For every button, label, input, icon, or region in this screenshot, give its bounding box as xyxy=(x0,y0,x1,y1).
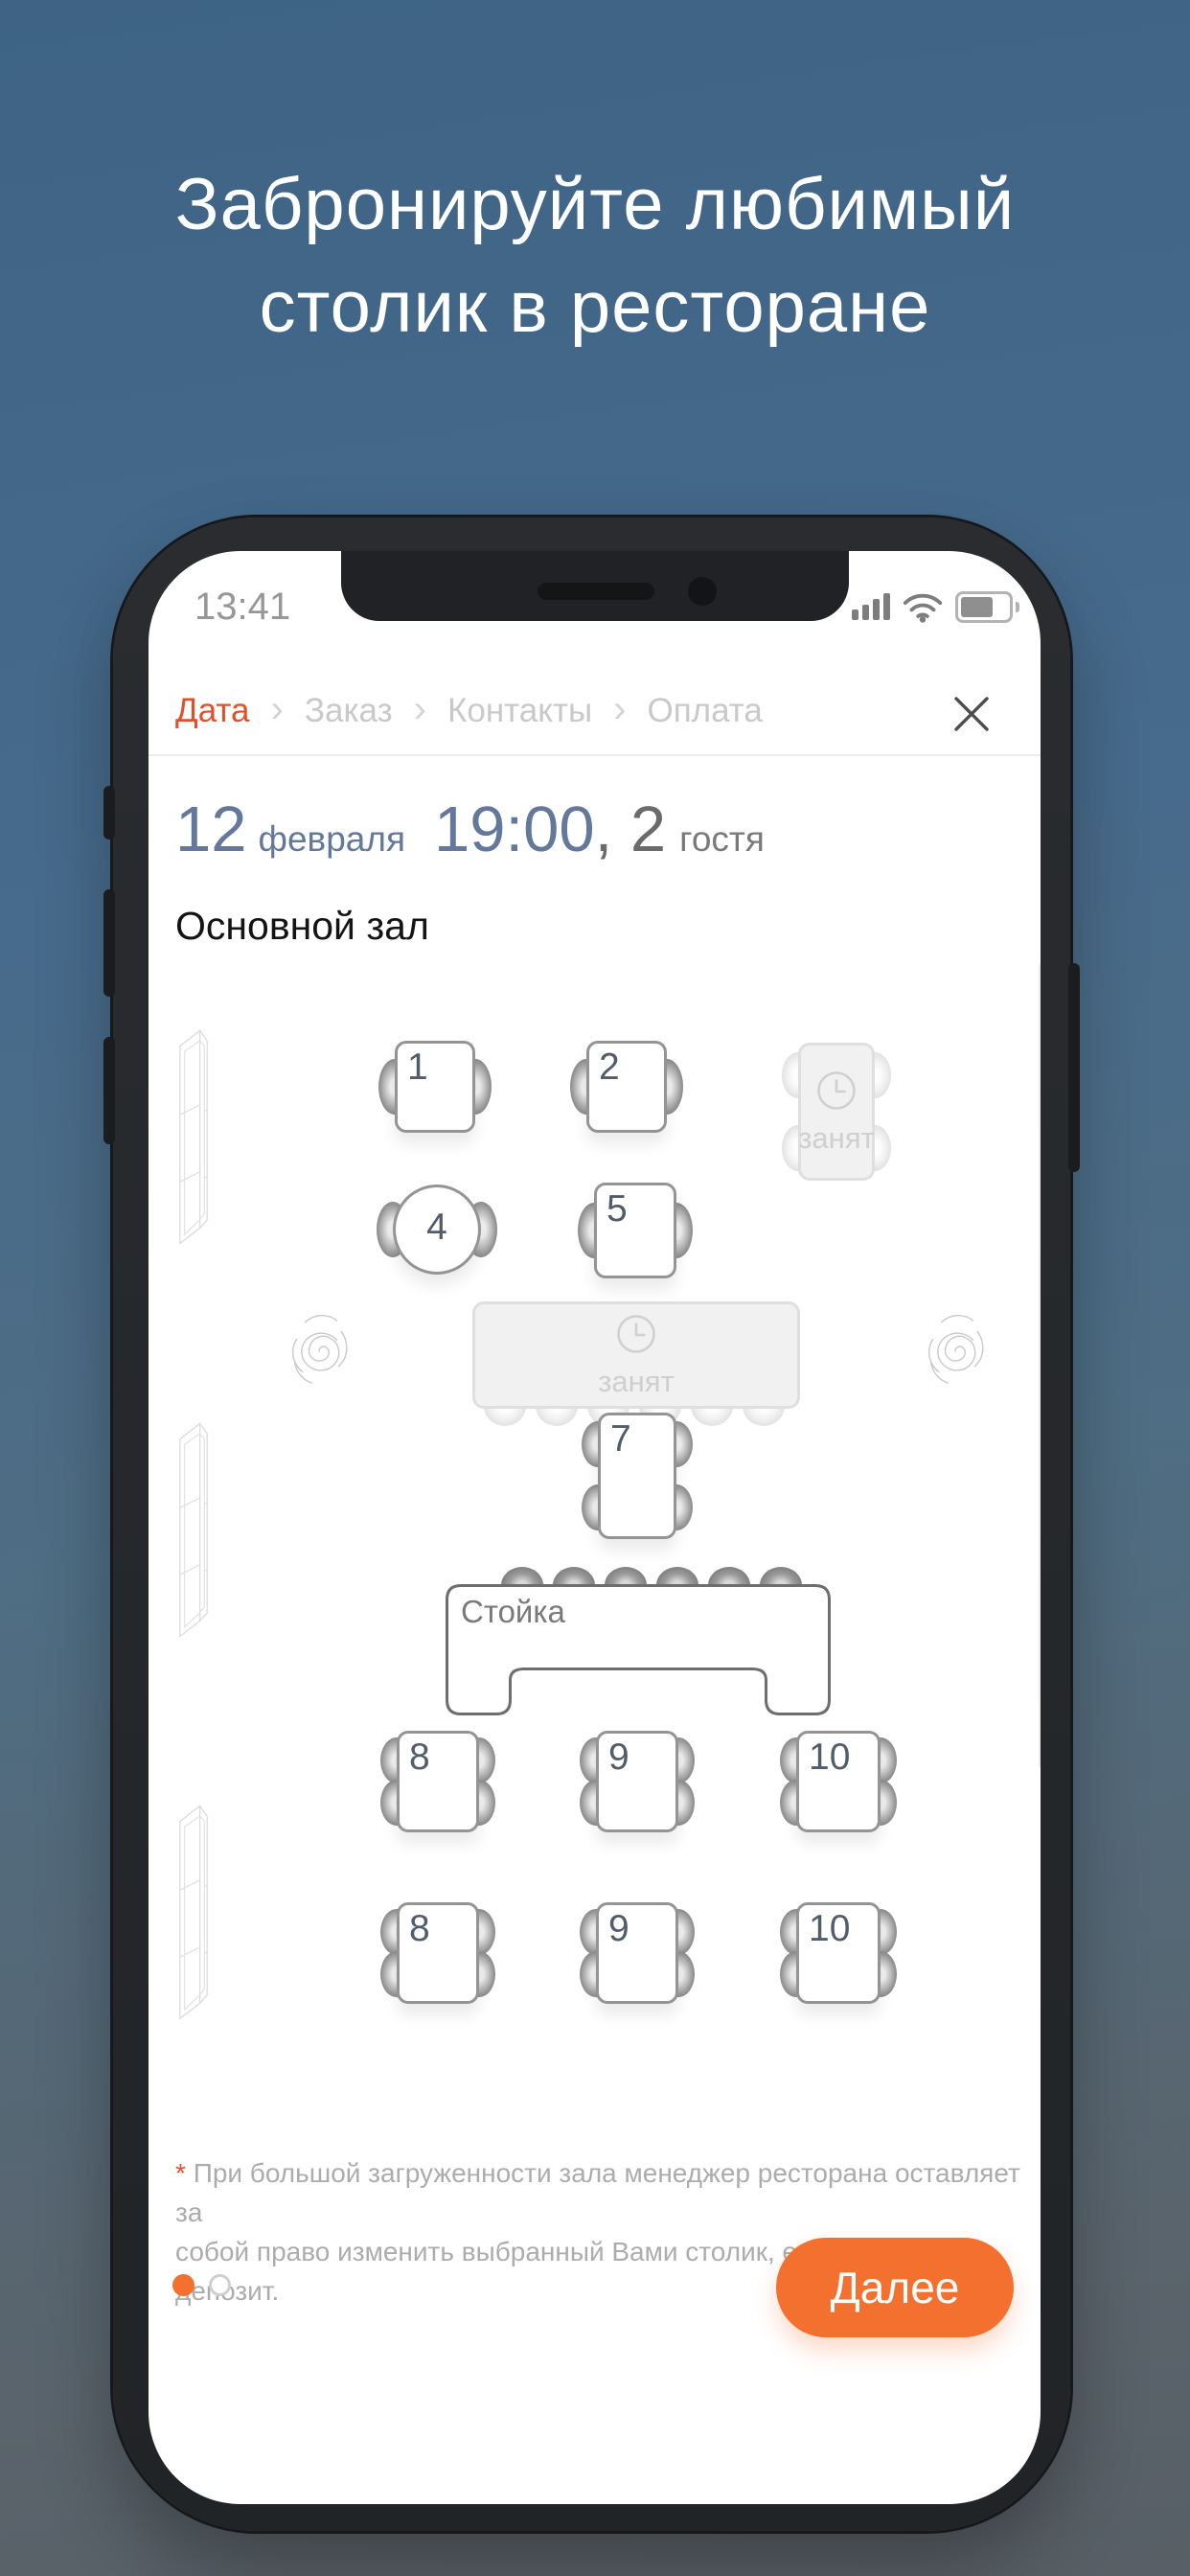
table-number: 9 xyxy=(608,1736,629,1779)
page-dot-1[interactable] xyxy=(172,2274,195,2296)
table-8[interactable]: 8 xyxy=(397,1731,479,1832)
phone-mockup: 13:41 xyxy=(113,517,1070,2531)
hero-heading: Забронируйте любимый столик в ресторане xyxy=(0,153,1190,358)
hero-heading-line2: столик в ресторане xyxy=(0,256,1190,358)
table-2[interactable]: 2 xyxy=(586,1041,667,1133)
footnote-line1: При большой загруженности зала менеджер … xyxy=(175,2158,1020,2227)
page-dots xyxy=(172,2274,231,2296)
table-1[interactable]: 1 xyxy=(395,1041,475,1133)
map-scroll-indicator xyxy=(1039,963,1041,1768)
page-dot-2[interactable] xyxy=(209,2274,231,2296)
clock-icon xyxy=(814,1069,858,1113)
mute-switch xyxy=(103,786,115,839)
table-9[interactable]: 9 xyxy=(596,1902,678,2004)
screenshot-canvas: Забронируйте любимый столик в ресторане … xyxy=(0,0,1190,2576)
window-decor-icon xyxy=(177,1027,210,1246)
table-10[interactable]: 10 xyxy=(796,1902,881,2004)
occupied-label: занят xyxy=(798,1121,875,1156)
table-number: 5 xyxy=(606,1188,628,1230)
table-number: 4 xyxy=(393,1181,481,1275)
table-number: 10 xyxy=(809,1736,850,1779)
table-number: 9 xyxy=(608,1908,629,1950)
bar-counter: Стойка xyxy=(446,1584,831,1715)
occupied-label: занят xyxy=(598,1365,675,1399)
table-number: 1 xyxy=(407,1046,428,1089)
occupied-table: занят xyxy=(472,1301,800,1409)
table-number: 10 xyxy=(809,1908,850,1950)
volume-up-button xyxy=(103,889,115,997)
table-number: 7 xyxy=(610,1418,631,1460)
power-button xyxy=(1068,963,1080,1172)
table-number: 2 xyxy=(599,1046,620,1089)
phone-screen: 13:41 xyxy=(149,551,1041,2504)
next-button[interactable]: Далее xyxy=(776,2238,1014,2337)
window-decor-icon xyxy=(177,1803,210,2021)
table-10[interactable]: 10 xyxy=(796,1731,881,1832)
occupied-indicator: занят xyxy=(798,1043,875,1181)
table-9[interactable]: 9 xyxy=(596,1731,678,1832)
occupied-table: занят xyxy=(798,1043,875,1181)
rose-decor-icon xyxy=(922,1309,987,1393)
hero-heading-line1: Забронируйте любимый xyxy=(0,153,1190,256)
table-number: 8 xyxy=(409,1736,430,1779)
table-7[interactable]: 7 xyxy=(598,1413,676,1539)
volume-down-button xyxy=(103,1037,115,1144)
clock-icon xyxy=(614,1312,658,1356)
table-8[interactable]: 8 xyxy=(397,1902,479,2004)
footnote-asterisk: * xyxy=(175,2158,186,2188)
table-number: 8 xyxy=(409,1908,430,1950)
window-decor-icon xyxy=(177,1420,210,1639)
rose-decor-icon xyxy=(286,1309,351,1393)
occupied-indicator: занят xyxy=(472,1301,800,1409)
bar-counter-label: Стойка xyxy=(461,1594,565,1630)
table-4[interactable]: 4 xyxy=(393,1184,481,1275)
table-5[interactable]: 5 xyxy=(594,1183,676,1278)
